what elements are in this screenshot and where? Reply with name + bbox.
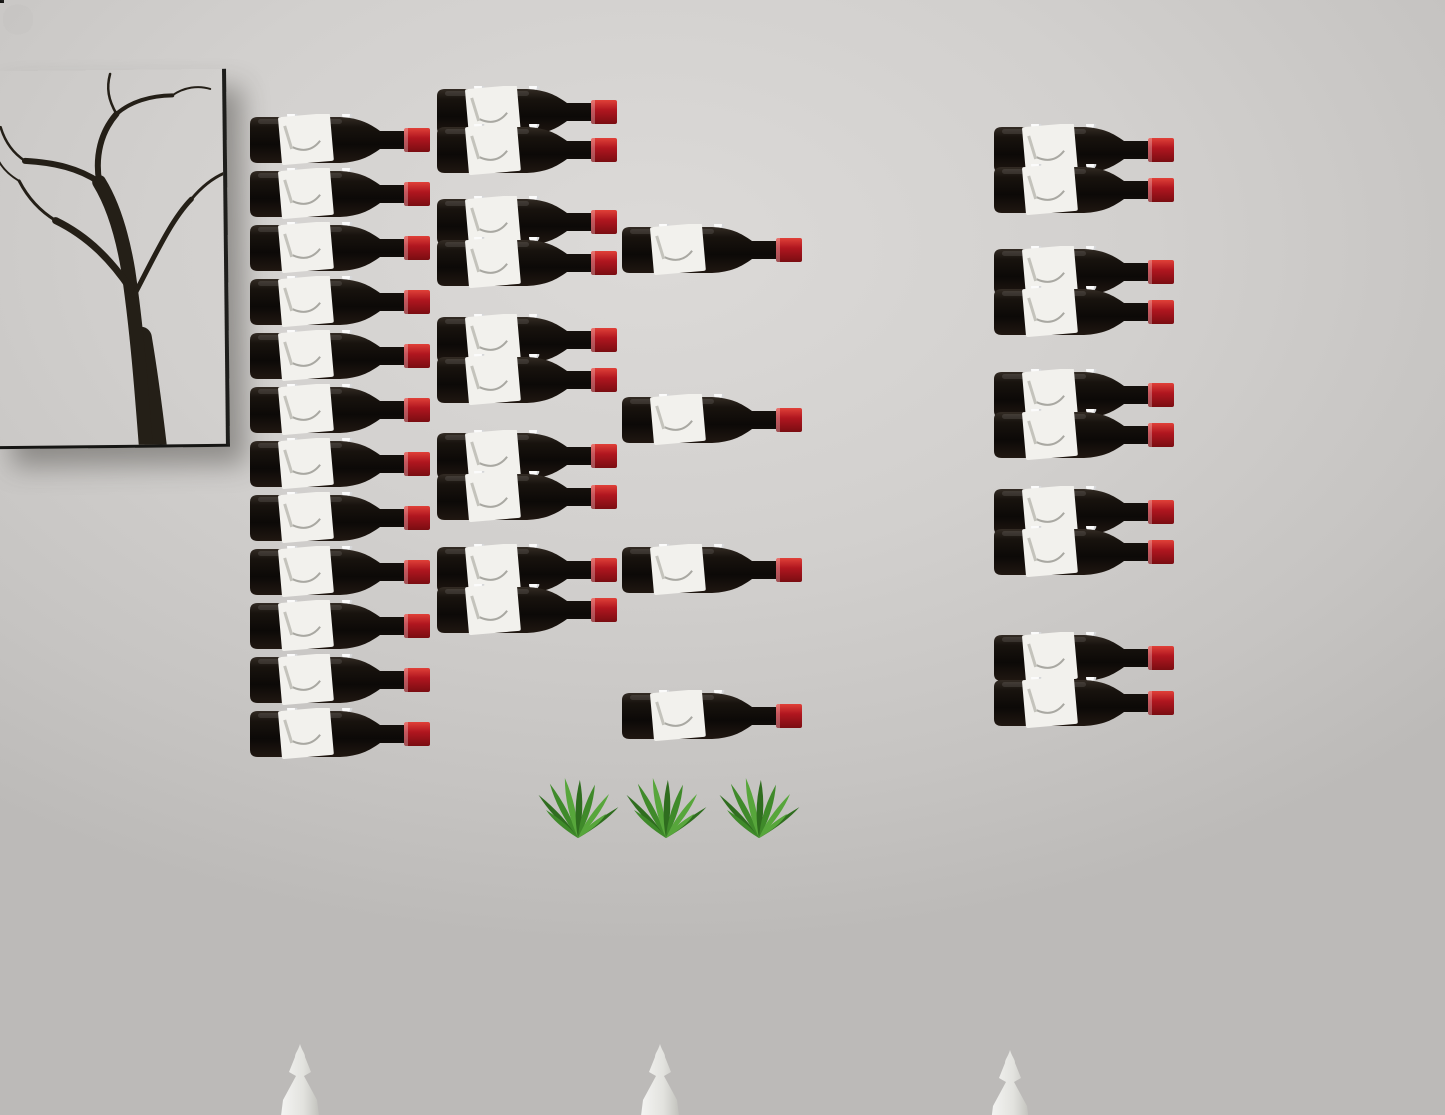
barrel-left — [0, 844, 221, 1115]
concrete-pot — [536, 832, 618, 896]
planter-tray — [526, 894, 818, 910]
concrete-pot — [622, 832, 706, 896]
barrel-staves — [0, 844, 221, 1115]
barrel-right — [1182, 931, 1445, 1115]
planter-group — [526, 780, 826, 916]
wine-decanter — [868, 726, 1068, 918]
concrete-pot — [710, 832, 806, 896]
succulent-plant — [711, 778, 807, 840]
wine-cellar-scene — [0, 0, 1445, 1115]
succulent-plant — [530, 778, 626, 840]
barrel-band — [1180, 1095, 1445, 1115]
succulent-plant — [618, 778, 714, 840]
